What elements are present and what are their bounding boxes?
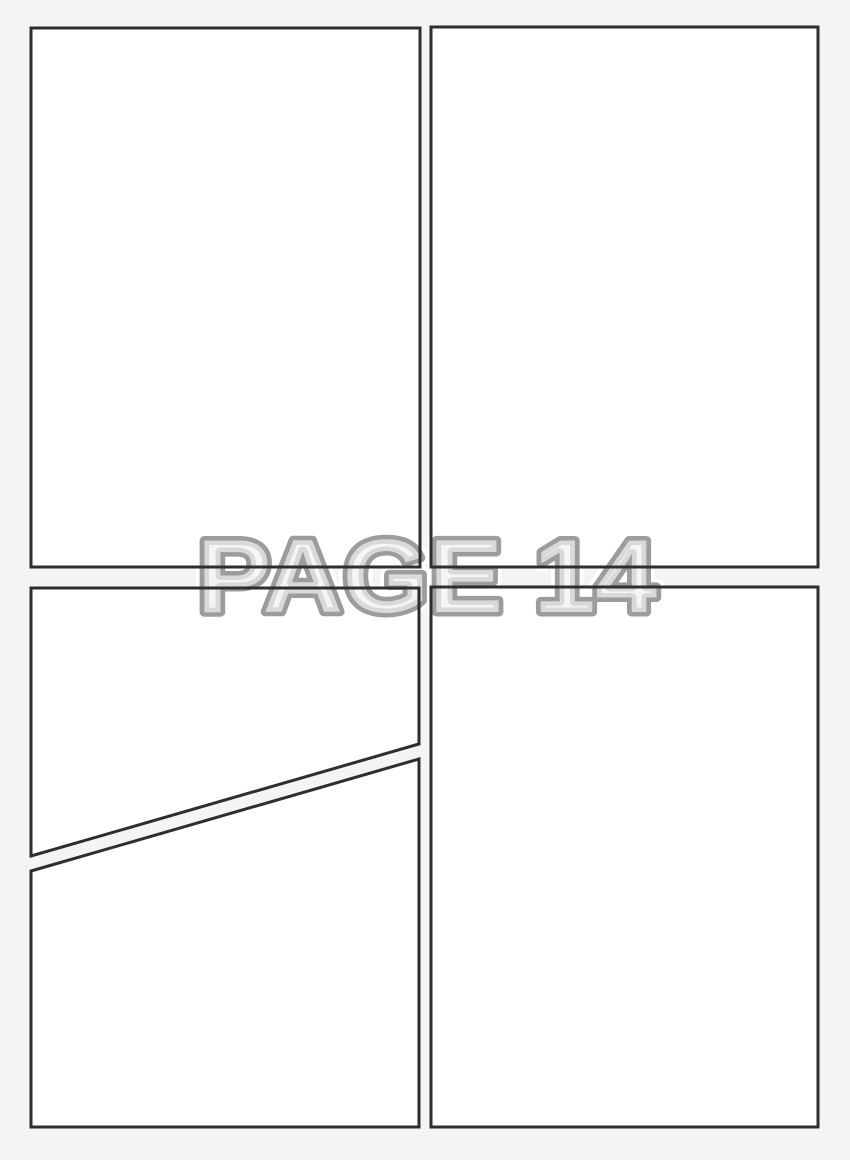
panel-top-left-fill — [31, 28, 420, 567]
comic-page-template: PAGE 14 PAGE 14 — [0, 0, 850, 1160]
page-watermark: PAGE 14 — [197, 519, 657, 635]
panel-top-right-fill — [431, 27, 818, 567]
panel-bottom-right-fill — [431, 587, 818, 1127]
